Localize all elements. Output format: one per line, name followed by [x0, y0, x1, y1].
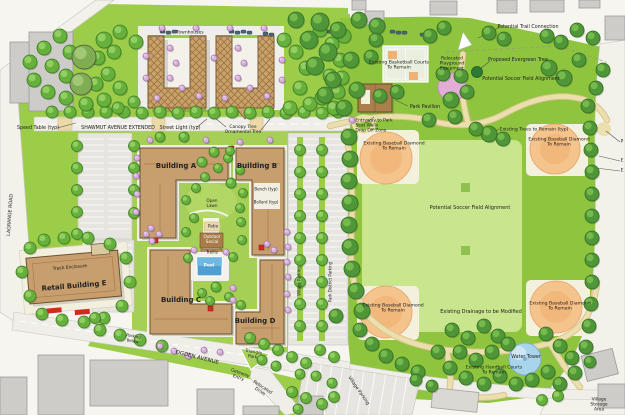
path-junction [597, 122, 611, 136]
parked-car-icon [247, 31, 252, 34]
handball-courts-shape [431, 388, 479, 413]
field-marker [461, 183, 470, 192]
parked-car-icon [241, 30, 246, 33]
parked-car-icon [172, 30, 177, 33]
baseball-diamond-nw [357, 130, 419, 184]
parked-car-icon [166, 31, 171, 34]
outdoor-social-shape [200, 233, 223, 248]
parked-car-icon [263, 32, 268, 35]
parked-car-icon [390, 30, 395, 33]
baseball-diamond-ne [526, 124, 588, 176]
parked-car-icon [269, 33, 274, 36]
basketball-courts-shape [383, 46, 428, 82]
parked-car-icon [235, 31, 240, 34]
parked-car-icon [402, 31, 407, 34]
speed-table [152, 118, 165, 130]
site-plan: TownhousesSpeed Table (typ)SHAWMUT AVENU… [0, 0, 625, 415]
parked-car-icon [396, 31, 401, 34]
building-b-courtyard [254, 183, 280, 209]
retail-building-e-shape [26, 250, 122, 304]
patio-shape [204, 222, 220, 231]
site-plan-map [0, 0, 625, 415]
field-marker [461, 246, 470, 255]
speed-table [58, 118, 72, 130]
